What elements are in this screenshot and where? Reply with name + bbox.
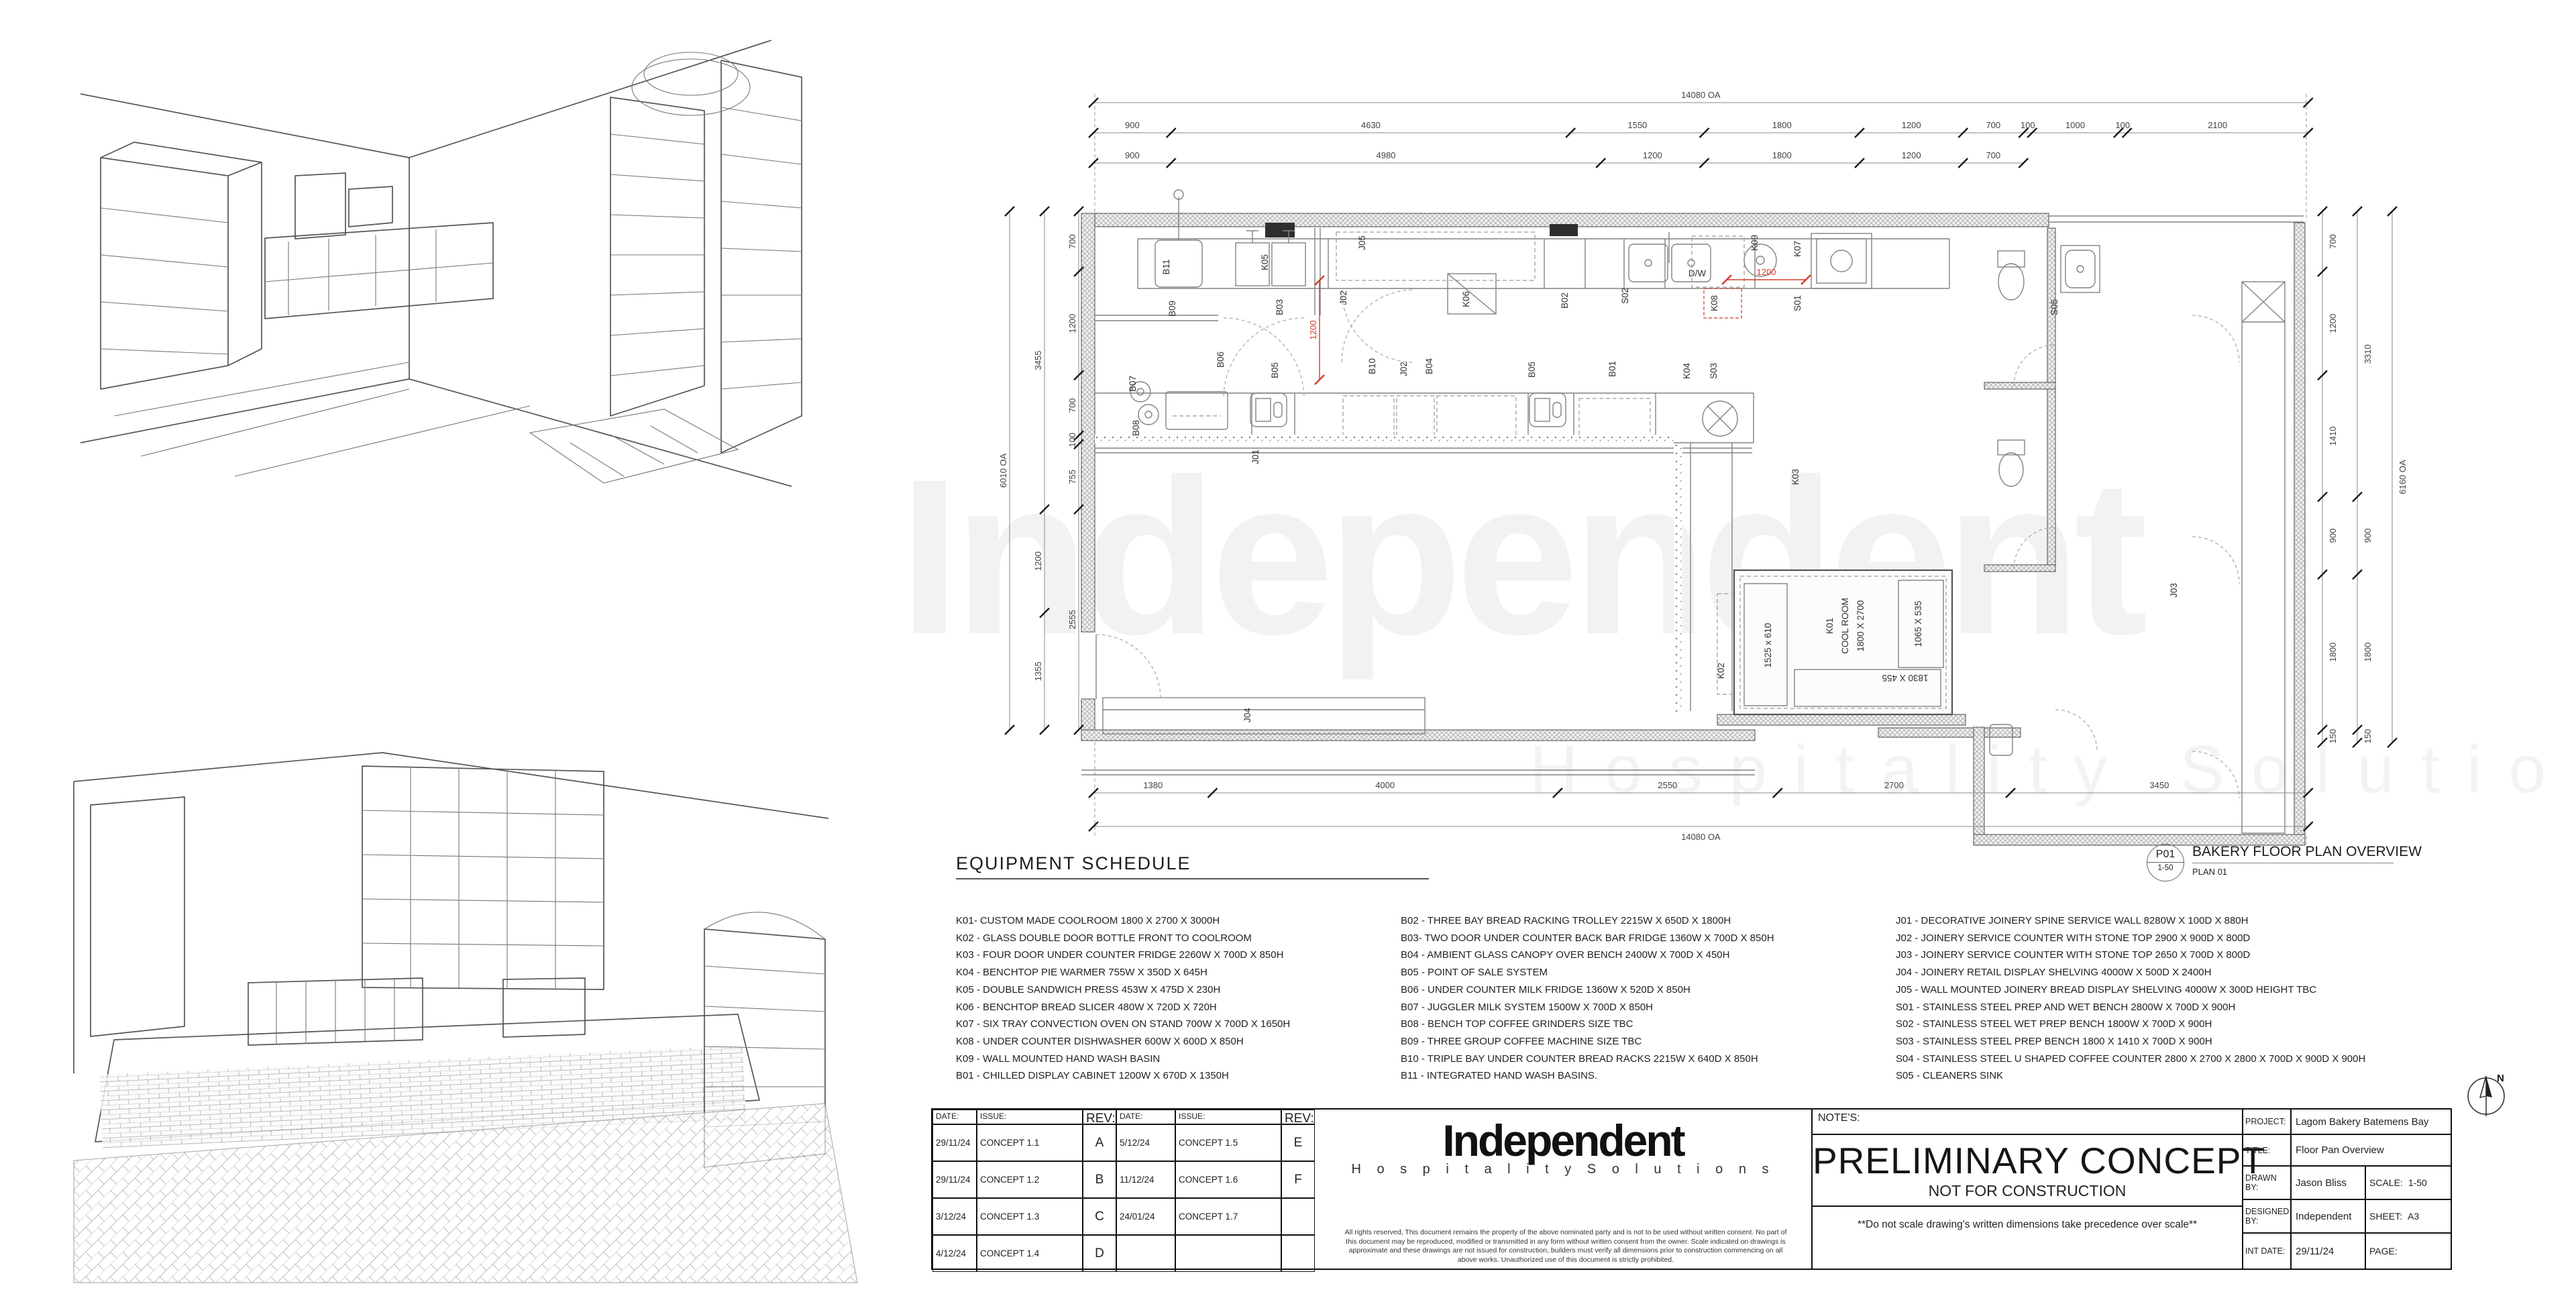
title-value: Floor Pan Overview [2292, 1135, 2451, 1165]
equipment-item: S02 - STAINLESS STEEL WET PREP BENCH 180… [1896, 1016, 2365, 1033]
svg-text:14080 OA: 14080 OA [1681, 90, 1721, 100]
svg-text:1200: 1200 [1902, 120, 1921, 130]
svg-text:3455: 3455 [1033, 351, 1043, 370]
title-block: DATE:ISSUE:REV:29/11/24CONCEPT 1.1A29/11… [931, 1108, 2452, 1270]
plan-label: B07 [1128, 376, 1138, 392]
plan-walls-and-fixtures [1081, 94, 2306, 845]
svg-text:2700: 2700 [1884, 780, 1904, 790]
plan-label: B05 [1527, 362, 1537, 378]
project-value: Lagom Bakery Batemens Bay [2292, 1110, 2451, 1134]
revision-header-cell: DATE: [1116, 1110, 1175, 1124]
plan-label: K08 [1709, 295, 1719, 311]
notes-cell: NOTE'S: PRELIMINARY CONCEPT NOT FOR CONS… [1811, 1110, 2243, 1269]
svg-text:700: 700 [2328, 234, 2338, 249]
logo-cell: Independent H o s p i t a l i t y S o l … [1315, 1110, 1811, 1269]
equipment-item: J03 - JOINERY SERVICE COUNTER WITH STONE… [1896, 947, 2365, 964]
equipment-item: B08 - BENCH TOP COFFEE GRINDERS SIZE TBC [1401, 1016, 1774, 1033]
equipment-schedule-rule [956, 878, 1429, 879]
revision-header-cell: ISSUE: [977, 1110, 1083, 1124]
north-compass: N [2458, 1068, 2514, 1124]
scale-cell: SCALE: 1-50 [2365, 1167, 2451, 1199]
svg-text:150: 150 [2363, 729, 2373, 744]
plan-label: COOL ROOM [1840, 598, 1850, 654]
plan-label: D/W [1688, 268, 1707, 278]
revision-group: DATE:ISSUE:REV:5/12/24CONCEPT 1.5E11/12/… [1116, 1110, 1315, 1269]
plan-label: K05 [1260, 254, 1270, 270]
preliminary-concept-title: PRELIMINARY CONCEPT [1813, 1139, 2242, 1182]
notes-rule-bottom [1813, 1205, 2242, 1207]
page-label: PAGE: [2369, 1246, 2398, 1256]
plan-label: J02 [1399, 362, 1409, 376]
svg-text:1800: 1800 [1772, 120, 1792, 130]
equipment-column-3: J01 - DECORATIVE JOINERY SPINE SERVICE W… [1896, 912, 2365, 1085]
revision-cell: 4/12/24 [932, 1235, 977, 1272]
svg-text:1800: 1800 [2328, 643, 2338, 662]
svg-text:4980: 4980 [1376, 150, 1395, 160]
plan-label: 1065 X 535 [1913, 600, 1923, 647]
revision-cell: A [1083, 1124, 1116, 1161]
plan-label: B11 [1161, 259, 1171, 274]
scale-value: 1-50 [2408, 1177, 2427, 1188]
plan-label: B05 [1270, 362, 1280, 378]
equipment-item: B02 - THREE BAY BREAD RACKING TROLLEY 22… [1401, 912, 1774, 930]
equipment-item: B11 - INTEGRATED HAND WASH BASINS. [1401, 1067, 1774, 1085]
svg-text:1200: 1200 [1757, 267, 1776, 277]
svg-text:1200: 1200 [1067, 314, 1077, 333]
svg-text:100: 100 [2021, 120, 2035, 130]
svg-text:1200: 1200 [1643, 150, 1662, 160]
plan-label: B09 [1167, 301, 1177, 317]
equipment-item: S03 - STAINLESS STEEL PREP BENCH 1800 X … [1896, 1033, 2365, 1051]
int-date-row: INT DATE: 29/11/24 PAGE: [2243, 1234, 2451, 1269]
revision-header-cell: ISSUE: [1175, 1110, 1281, 1124]
svg-text:1380: 1380 [1143, 780, 1163, 790]
revision-header-cell: REV: [1281, 1110, 1315, 1124]
int-date-label: INT DATE: [2243, 1234, 2292, 1269]
plan-label: J05 [1357, 235, 1367, 250]
svg-text:100: 100 [1067, 433, 1077, 447]
drawn-by-value: Jason Bliss [2292, 1167, 2365, 1199]
equipment-column-2: B02 - THREE BAY BREAD RACKING TROLLEY 22… [1401, 912, 1774, 1085]
project-label: PROJECT: [2243, 1110, 2292, 1134]
plan-label: K02 [1716, 663, 1726, 679]
sheet-label: SHEET: [2369, 1211, 2402, 1222]
plan-label: B10 [1367, 358, 1377, 374]
svg-text:100: 100 [2115, 120, 2130, 130]
plan-label: K09 [1750, 235, 1760, 251]
plan-label: B01 [1607, 361, 1617, 377]
revision-header-cell: REV: [1083, 1110, 1116, 1124]
compass-n-label: N [2497, 1073, 2504, 1084]
svg-text:755: 755 [1067, 470, 1077, 484]
revision-cell: CONCEPT 1.7 [1175, 1198, 1281, 1235]
scale-label: SCALE: [2369, 1177, 2403, 1188]
equipment-item: S05 - CLEANERS SINK [1896, 1067, 2365, 1085]
svg-text:150: 150 [2328, 729, 2338, 744]
equipment-item: J01 - DECORATIVE JOINERY SPINE SERVICE W… [1896, 912, 2365, 930]
revision-cell: CONCEPT 1.5 [1175, 1124, 1281, 1161]
plan-label: K06 [1461, 291, 1471, 307]
equipment-item: S04 - STAINLESS STEEL U SHAPED COFFEE CO… [1896, 1051, 2365, 1068]
equipment-item: B05 - POINT OF SALE SYSTEM [1401, 964, 1774, 981]
revision-cell [1116, 1235, 1175, 1272]
revision-cell: 5/12/24 [1116, 1124, 1175, 1161]
disclaimer-text: All rights reserved, This document remai… [1340, 1228, 1791, 1265]
project-info-cell: PROJECT: Lagom Bakery Batemens Bay TITLE… [2243, 1110, 2451, 1269]
svg-text:700: 700 [1986, 120, 2000, 130]
revision-cell: D [1083, 1235, 1116, 1272]
plan-label: K03 [1790, 469, 1801, 485]
floor-plan: 14080 OA90046301550180012007001001000100… [0, 0, 2576, 1290]
equipment-item: B09 - THREE GROUP COFFEE MACHINE SIZE TB… [1401, 1033, 1774, 1051]
plan-dimensions: 14080 OA90046301550180012007001001000100… [998, 90, 2408, 842]
plan-label: K01 [1825, 618, 1835, 634]
revision-cell [1281, 1198, 1315, 1235]
equipment-item: B01 - CHILLED DISPLAY CABINET 1200W X 67… [956, 1067, 1290, 1085]
revision-cell: CONCEPT 1.6 [1175, 1161, 1281, 1198]
equipment-item: B07 - JUGGLER MILK SYSTEM 1500W X 700D X… [1401, 999, 1774, 1016]
equipment-item: K04 - BENCHTOP PIE WARMER 755W X 350D X … [956, 964, 1290, 981]
plan-label: B04 [1424, 358, 1434, 375]
designed-by-row: DESIGNED BY: Independent SHEET: A3 [2243, 1200, 2451, 1234]
plan-label: B03 [1275, 299, 1285, 315]
revision-cell: 11/12/24 [1116, 1161, 1175, 1198]
equipment-item: B06 - UNDER COUNTER MILK FRIDGE 1360W X … [1401, 981, 1774, 999]
equipment-schedule-title: EQUIPMENT SCHEDULE [956, 853, 2479, 874]
equipment-item: J02 - JOINERY SERVICE COUNTER WITH STONE… [1896, 930, 2365, 947]
drawn-by-row: DRAWN BY: Jason Bliss SCALE: 1-50 [2243, 1167, 2451, 1200]
plan-label: J04 [1242, 708, 1252, 722]
equipment-item: J04 - JOINERY RETAIL DISPLAY SHELVING 40… [1896, 964, 2365, 981]
not-for-construction-subtitle: NOT FOR CONSTRUCTION [1813, 1182, 2242, 1200]
project-row: PROJECT: Lagom Bakery Batemens Bay [2243, 1110, 2451, 1135]
revision-cell: 3/12/24 [932, 1198, 977, 1235]
drawn-by-label: DRAWN BY: [2243, 1167, 2292, 1199]
plan-label: 1525 x 610 [1763, 623, 1773, 668]
svg-text:1200: 1200 [1033, 551, 1043, 571]
plan-label: S02 [1620, 288, 1630, 304]
equipment-schedule: EQUIPMENT SCHEDULE K01- CUSTOM MADE COOL… [956, 853, 2479, 879]
svg-text:2100: 2100 [2208, 120, 2227, 130]
svg-text:700: 700 [1986, 150, 2000, 160]
equipment-item: B04 - AMBIENT GLASS CANOPY OVER BENCH 24… [1401, 947, 1774, 964]
svg-text:700: 700 [1067, 398, 1077, 413]
plan-label: S05 [2049, 299, 2059, 315]
svg-text:1200: 1200 [1308, 321, 1318, 340]
designed-by-label: DESIGNED BY: [2243, 1200, 2292, 1232]
revision-cell: 29/11/24 [932, 1161, 977, 1198]
svg-text:4630: 4630 [1361, 120, 1381, 130]
designed-by-value: Independent [2292, 1200, 2365, 1232]
svg-text:1200: 1200 [1902, 150, 1921, 160]
equipment-item: K09 - WALL MOUNTED HAND WASH BASIN [956, 1051, 1290, 1068]
do-not-scale-note: **Do not scale drawing's written dimensi… [1813, 1219, 2242, 1231]
svg-text:1000: 1000 [2065, 120, 2085, 130]
svg-text:6010 OA: 6010 OA [998, 453, 1008, 488]
revision-cell: CONCEPT 1.3 [977, 1198, 1083, 1235]
revision-cell: B [1083, 1161, 1116, 1198]
revision-cell: CONCEPT 1.4 [977, 1235, 1083, 1272]
svg-text:900: 900 [2363, 529, 2373, 543]
sheet-value: A3 [2408, 1211, 2419, 1222]
revision-cell: E [1281, 1124, 1315, 1161]
plan-label: 1800 X 2700 [1856, 600, 1866, 652]
plan-label: S03 [1709, 363, 1719, 379]
plan-label: B02 [1560, 292, 1570, 309]
svg-text:700: 700 [1067, 234, 1077, 249]
plan-label: J02 [1338, 290, 1348, 305]
int-date-value: 29/11/24 [2292, 1234, 2365, 1269]
svg-text:6160 OA: 6160 OA [2398, 460, 2408, 494]
plan-label: K04 [1682, 363, 1692, 380]
equipment-item: K06 - BENCHTOP BREAD SLICER 480W X 720D … [956, 999, 1290, 1016]
svg-text:1800: 1800 [1772, 150, 1792, 160]
svg-text:1550: 1550 [1627, 120, 1647, 130]
equipment-item: K05 - DOUBLE SANDWICH PRESS 453W X 475D … [956, 981, 1290, 999]
svg-text:900: 900 [1125, 120, 1140, 130]
revision-cell: CONCEPT 1.2 [977, 1161, 1083, 1198]
svg-text:1355: 1355 [1033, 661, 1043, 681]
logo-tagline: H o s p i t a l i t y S o l u t i o n s [1315, 1162, 1811, 1177]
title-label: TITLE: [2243, 1135, 2292, 1165]
revision-table: DATE:ISSUE:REV:29/11/24CONCEPT 1.1A29/11… [932, 1110, 1315, 1269]
equipment-item: K03 - FOUR DOOR UNDER COUNTER FRIDGE 226… [956, 947, 1290, 964]
equipment-item: K07 - SIX TRAY CONVECTION OVEN ON STAND … [956, 1016, 1290, 1033]
svg-text:1800: 1800 [2363, 643, 2373, 662]
sheet-cell: SHEET: A3 [2365, 1200, 2451, 1232]
svg-text:1410: 1410 [2328, 427, 2338, 446]
svg-text:1200: 1200 [2328, 314, 2338, 333]
revision-cell: F [1281, 1161, 1315, 1198]
svg-text:900: 900 [2328, 529, 2338, 543]
notes-rule-top [1813, 1134, 2242, 1135]
revision-cell: CONCEPT 1.1 [977, 1124, 1083, 1161]
revision-cell: C [1083, 1198, 1116, 1235]
revision-cell [1175, 1235, 1281, 1272]
equipment-item: S01 - STAINLESS STEEL PREP AND WET BENCH… [1896, 999, 2365, 1016]
equipment-item: K08 - UNDER COUNTER DISHWASHER 600W X 60… [956, 1033, 1290, 1051]
svg-text:900: 900 [1125, 150, 1140, 160]
title-row: TITLE: Floor Pan Overview [2243, 1135, 2451, 1167]
plan-label: J01 [1250, 449, 1260, 464]
equipment-item: B10 - TRIPLE BAY UNDER COUNTER BREAD RAC… [1401, 1051, 1774, 1068]
revision-cell [1281, 1235, 1315, 1272]
plan-label: B06 [1216, 352, 1226, 368]
revision-header-cell: DATE: [932, 1110, 977, 1124]
plan-label: B08 [1131, 420, 1141, 436]
svg-text:2555: 2555 [1067, 610, 1077, 629]
plan-label: S01 [1792, 295, 1803, 311]
notes-label: NOTE'S: [1818, 1112, 2242, 1124]
svg-text:2550: 2550 [1658, 780, 1677, 790]
svg-text:14080 OA: 14080 OA [1681, 832, 1721, 842]
logo-name: Independent [1315, 1115, 1811, 1166]
equipment-item: K01- CUSTOM MADE COOLROOM 1800 X 2700 X … [956, 912, 1290, 930]
revision-cell: 29/11/24 [932, 1124, 977, 1161]
svg-text:3450: 3450 [2149, 780, 2169, 790]
revision-cell: 24/01/24 [1116, 1198, 1175, 1235]
equipment-item: K02 - GLASS DOUBLE DOOR BOTTLE FRONT TO … [956, 930, 1290, 947]
equipment-item: J05 - WALL MOUNTED JOINERY BREAD DISPLAY… [1896, 981, 2365, 999]
svg-text:3310: 3310 [2363, 344, 2373, 364]
drawing-sheet: { "sheet": { "watermark": {"line1": "Ind… [0, 0, 2576, 1290]
page-cell: PAGE: [2365, 1234, 2451, 1269]
revision-group: DATE:ISSUE:REV:29/11/24CONCEPT 1.1A29/11… [932, 1110, 1116, 1269]
equipment-item: B03- TWO DOOR UNDER COUNTER BACK BAR FRI… [1401, 930, 1774, 947]
equipment-column-1: K01- CUSTOM MADE COOLROOM 1800 X 2700 X … [956, 912, 1290, 1085]
plan-label: K07 [1792, 241, 1803, 257]
plan-label: 1830 X 455 [1882, 673, 1928, 683]
svg-text:4000: 4000 [1375, 780, 1395, 790]
plan-label: J03 [2169, 583, 2179, 598]
